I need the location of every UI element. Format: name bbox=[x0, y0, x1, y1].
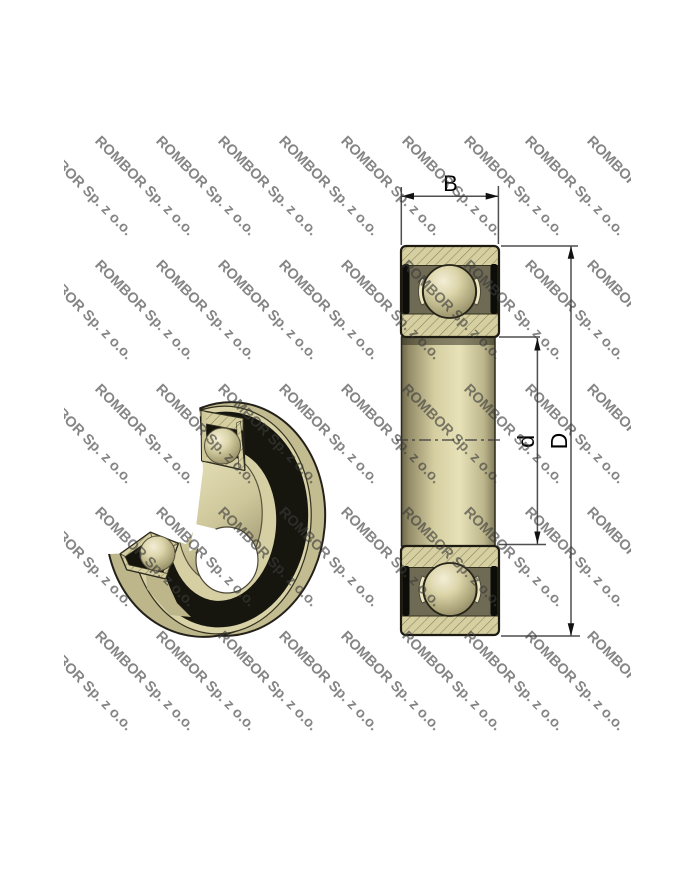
svg-text:B: B bbox=[443, 171, 458, 196]
svg-text:d: d bbox=[513, 435, 539, 448]
svg-text:D: D bbox=[546, 433, 572, 450]
